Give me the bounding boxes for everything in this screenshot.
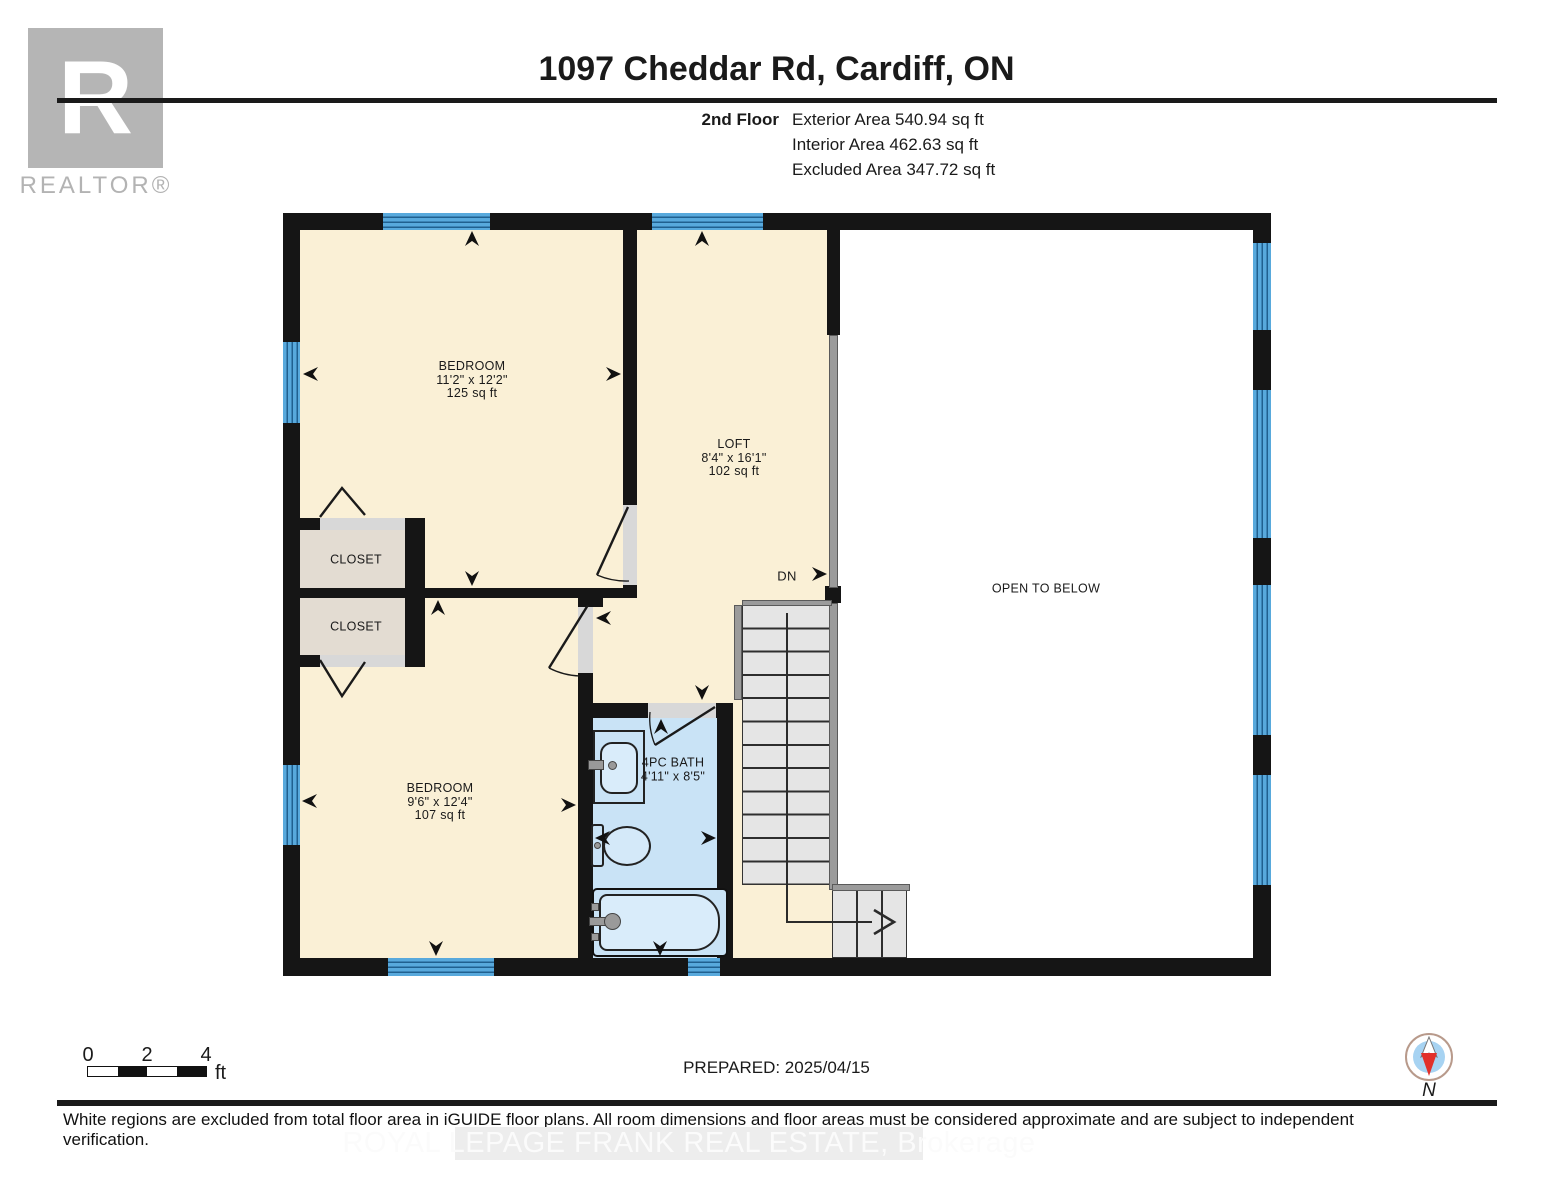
window	[652, 213, 763, 230]
tub-handle-icon	[591, 903, 599, 911]
header-divider	[57, 98, 1497, 103]
loft-label: LOFT8'4" x 16'1"102 sq ft	[701, 438, 766, 479]
landing-railing	[832, 884, 910, 891]
toilet-icon	[603, 826, 651, 866]
tub-handle-icon	[591, 933, 599, 941]
stair-railing	[734, 605, 742, 700]
closet-opening	[320, 655, 405, 667]
window	[1253, 775, 1271, 885]
stair-railing	[829, 603, 838, 890]
scale-segment	[88, 1067, 118, 1076]
window	[283, 342, 300, 423]
window	[383, 213, 490, 230]
scalebar-0: 0	[82, 1044, 93, 1067]
compass-north-label: N	[1422, 1080, 1436, 1102]
door-opening	[623, 505, 637, 585]
door-opening	[648, 703, 716, 718]
interior-area: Interior Area 462.63 sq ft	[792, 135, 1112, 155]
door-opening	[578, 607, 593, 673]
wall	[405, 518, 425, 667]
sink-drain-icon	[608, 761, 617, 770]
staircase-landing	[832, 890, 907, 958]
staircase-treads	[742, 605, 832, 885]
wall	[300, 655, 320, 667]
exterior-area: Exterior Area 540.94 sq ft	[792, 110, 1112, 130]
bedroom2-label: BEDROOM9'6" x 12'4"107 sq ft	[407, 782, 474, 823]
watermark-text: ROYAL LEPAGE FRANK REAL ESTATE, Brokerag…	[342, 1127, 1035, 1160]
scalebar-2: 2	[141, 1044, 152, 1067]
scale-segment	[118, 1067, 148, 1076]
footer-divider	[57, 1100, 1497, 1106]
bedroom1-label: BEDROOM11'2" x 12'2"125 sq ft	[436, 360, 508, 401]
closet1-label: CLOSET	[330, 553, 382, 567]
prepared-date: PREPARED: 2025/04/15	[0, 1058, 1553, 1078]
wall	[283, 213, 300, 976]
scale-segment	[147, 1067, 177, 1076]
sink-faucet-icon	[588, 760, 604, 770]
stair-railing	[742, 600, 832, 606]
scalebar-unit: ft	[215, 1062, 226, 1085]
window	[283, 765, 300, 845]
window	[1253, 585, 1271, 735]
window	[1253, 390, 1271, 538]
sink-icon	[600, 742, 638, 794]
stairs-dn-label: DN	[777, 569, 796, 583]
scale-bar	[87, 1066, 207, 1077]
wall	[623, 230, 637, 505]
wall	[578, 598, 603, 607]
floorplan-page: R REALTOR® 1097 Cheddar Rd, Cardiff, ON …	[0, 0, 1553, 1200]
bath-label: 4PC BATH4'11" x 8'5"	[641, 757, 705, 784]
hall-floor	[593, 598, 637, 718]
open-to-below-label: OPEN TO BELOW	[992, 582, 1100, 596]
wall	[827, 230, 840, 335]
excluded-area: Excluded Area 347.72 sq ft	[792, 160, 1112, 180]
closet-opening	[320, 518, 405, 530]
toilet-flush-icon	[594, 842, 601, 849]
tub-drain-icon	[604, 913, 621, 930]
realtor-wordmark: REALTOR®	[6, 172, 186, 200]
window	[388, 958, 494, 976]
page-title: 1097 Cheddar Rd, Cardiff, ON	[0, 50, 1553, 89]
wall	[300, 518, 320, 530]
brokerage-watermark: ROYAL LEPAGE FRANK REAL ESTATE, Brokerag…	[455, 1127, 923, 1160]
wall	[300, 588, 637, 598]
window	[688, 958, 720, 976]
loft-railing	[829, 335, 838, 588]
scale-segment	[177, 1067, 207, 1076]
window	[1253, 243, 1271, 330]
scalebar-4: 4	[200, 1044, 211, 1067]
closet2-label: CLOSET	[330, 620, 382, 634]
